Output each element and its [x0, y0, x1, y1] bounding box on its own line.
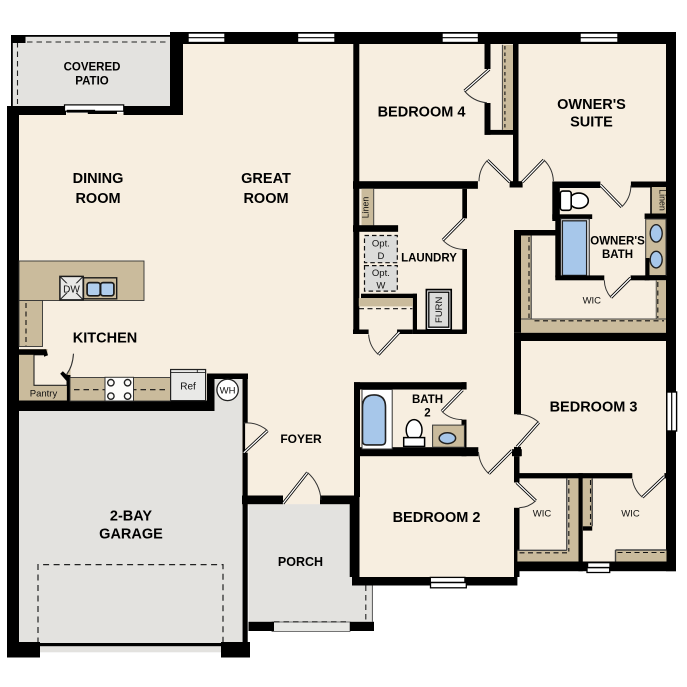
svg-text:BATH: BATH — [412, 394, 443, 406]
svg-text:PORCH: PORCH — [278, 555, 323, 569]
svg-text:W: W — [376, 281, 385, 292]
svg-text:2: 2 — [424, 408, 430, 420]
svg-text:Ref: Ref — [180, 381, 196, 392]
svg-text:WIC: WIC — [621, 509, 640, 520]
svg-text:D: D — [377, 251, 384, 262]
svg-text:LAUNDRY: LAUNDRY — [401, 253, 457, 265]
svg-text:WIC: WIC — [533, 509, 552, 520]
svg-text:WIC: WIC — [583, 296, 602, 307]
svg-text:BATH: BATH — [602, 249, 633, 261]
svg-text:2-BAY: 2-BAY — [110, 509, 153, 525]
svg-text:ROOM: ROOM — [75, 191, 120, 207]
svg-text:PATIO: PATIO — [75, 76, 108, 88]
svg-text:WH: WH — [220, 386, 236, 397]
svg-text:SUITE: SUITE — [570, 115, 613, 131]
svg-text:BEDROOM 3: BEDROOM 3 — [550, 400, 638, 416]
svg-text:Opt.: Opt. — [372, 268, 390, 279]
svg-text:KITCHEN: KITCHEN — [73, 331, 137, 347]
svg-text:COVERED: COVERED — [64, 62, 121, 74]
svg-text:Opt.: Opt. — [372, 239, 390, 250]
svg-text:Linen: Linen — [361, 197, 371, 219]
svg-text:OWNER'S: OWNER'S — [557, 97, 626, 113]
svg-text:Linen: Linen — [658, 189, 668, 211]
svg-text:GREAT: GREAT — [241, 171, 291, 187]
svg-text:DINING: DINING — [73, 171, 124, 187]
svg-text:OWNER'S: OWNER'S — [590, 236, 645, 248]
svg-text:ROOM: ROOM — [243, 191, 288, 207]
svg-text:BEDROOM 2: BEDROOM 2 — [393, 510, 481, 526]
svg-text:Pantry: Pantry — [30, 389, 58, 400]
svg-text:DW: DW — [63, 284, 80, 295]
svg-text:BEDROOM 4: BEDROOM 4 — [378, 105, 466, 121]
svg-text:FOYER: FOYER — [280, 432, 322, 446]
svg-text:FURN: FURN — [434, 296, 445, 323]
svg-text:GARAGE: GARAGE — [99, 527, 163, 543]
